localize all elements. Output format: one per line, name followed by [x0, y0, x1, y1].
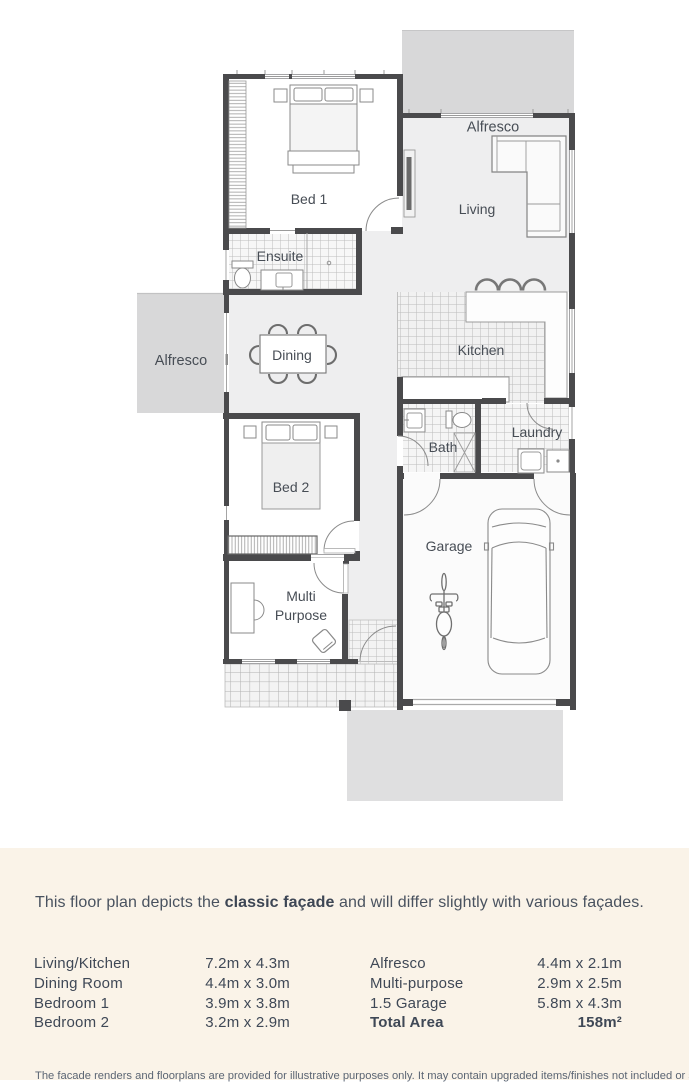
svg-text:Bed 1: Bed 1 [291, 191, 328, 207]
svg-text:Bed 2: Bed 2 [273, 479, 310, 495]
svg-text:Alfresco: Alfresco [155, 353, 207, 369]
svg-text:Bath: Bath [429, 439, 458, 455]
svg-text:Laundry: Laundry [512, 424, 563, 440]
svg-text:Dining: Dining [272, 347, 312, 363]
svg-text:Multi: Multi [286, 588, 316, 604]
svg-text:Alfresco: Alfresco [467, 120, 519, 136]
svg-text:Kitchen: Kitchen [458, 342, 505, 358]
svg-text:Purpose: Purpose [275, 607, 327, 623]
svg-text:Ensuite: Ensuite [257, 248, 304, 264]
svg-text:Living: Living [459, 201, 496, 217]
svg-text:Garage: Garage [426, 538, 473, 554]
